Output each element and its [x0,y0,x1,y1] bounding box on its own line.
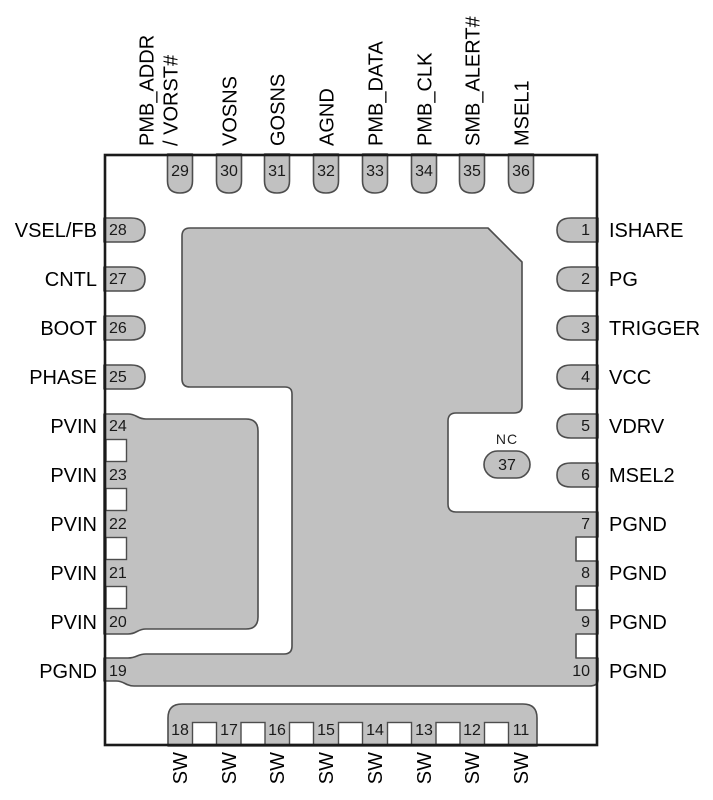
pin-number: 8 [581,565,590,582]
pin-number: 11 [513,722,530,739]
pin-label: PVIN [50,416,97,438]
pin-label: SW [170,752,192,784]
right-pin-tabs [557,218,598,487]
pin-number: 5 [581,418,590,435]
ic-pinout-svg: 29 30 31 32 33 34 35 36 PMB_ADDR / VORST… [0,0,713,800]
pin-separator-notch [241,723,265,745]
pin-label: VOSNS [220,76,242,146]
pin-tab-3 [557,316,598,340]
pin-number: 2 [581,271,590,288]
pin-label: PMB_DATA [366,41,388,146]
pin-number: 23 [109,467,127,484]
pin-number: 27 [109,271,127,288]
pin-label: / VORST# [161,54,183,146]
pin-number: 19 [109,663,127,680]
pin-number: 36 [512,163,530,180]
pin-separator-notch [193,723,217,745]
pin-label: SW [365,752,387,784]
pin-separator-notch [106,489,127,511]
pin-number: 35 [463,163,481,180]
pvin-block-group [104,414,258,634]
pin-label: SW [511,752,533,784]
pin-tab-6 [557,463,598,487]
pin-separator-notch [106,440,127,462]
pin-label: MSEL2 [609,465,675,487]
pin-number: 7 [581,516,590,533]
pin-number: 29 [171,163,189,180]
pin-separator-notch [339,723,363,745]
pin-label: VDRV [609,416,665,438]
pin-number: 25 [109,369,127,386]
pin-label: ISHARE [609,220,683,242]
pin-label: PG [609,269,638,291]
pin-label: PMB_CLK [415,52,437,146]
pin-label: PHASE [29,367,97,389]
pin-number: 10 [572,663,590,680]
pin-label: SW [267,752,289,784]
pin-number: 22 [109,516,127,533]
pinout-diagram: 29 30 31 32 33 34 35 36 PMB_ADDR / VORST… [0,0,713,800]
pin-number: 20 [109,614,127,631]
pin-label: TRIGGER [609,318,700,340]
pin-number: 1 [581,222,590,239]
pin-label: SW [219,752,241,784]
left-pin-labels: VSEL/FB CNTL BOOT PHASE PVIN PVIN PVIN P… [15,220,97,683]
pin-label: PGND [39,661,97,683]
pin-separator-notch [106,587,127,609]
pin-separator-notch [436,723,460,745]
pin-label: PGND [609,612,667,634]
pin-tab-2 [557,267,598,291]
pin-number: 31 [268,163,286,180]
pin-number: 24 [109,418,127,435]
pin-number: 37 [498,457,516,474]
pin-label: MSEL1 [512,80,534,146]
pin-number: 34 [415,163,433,180]
pin-number: 33 [366,163,384,180]
pin-label: PVIN [50,514,97,536]
pin-number: 16 [268,722,286,739]
pin-number: 28 [109,222,127,239]
pin-label: PGND [609,514,667,536]
left-pin-tabs [104,218,145,389]
top-pin-numbers: 29 30 31 32 33 34 35 36 [171,163,530,180]
top-pin-labels: PMB_ADDR / VORST# VOSNS GOSNS AGND PMB_D… [137,15,534,146]
pin-label: VSEL/FB [15,220,97,242]
pin-label: SW [316,752,338,784]
pin-number: 15 [317,722,335,739]
pin-number: 3 [581,320,590,337]
pin-number: 26 [109,320,127,337]
pin-number: 32 [317,163,335,180]
pin-label: PGND [609,661,667,683]
pin-label: BOOT [40,318,97,340]
pin-label: AGND [317,88,339,146]
pin-number: 14 [366,722,384,739]
pin-separator-notch [388,723,412,745]
pin-label: PGND [609,563,667,585]
pin-label: PVIN [50,612,97,634]
right-pin-labels: ISHARE PG TRIGGER VCC VDRV MSEL2 PGND PG… [609,220,700,683]
pin-label: SMB_ALERT# [463,15,485,146]
pin-label: VCC [609,367,651,389]
pin-number: 6 [581,467,590,484]
pin-number: 30 [220,163,238,180]
pin-tab-5 [557,414,598,438]
pin-label: PVIN [50,563,97,585]
pin-label: NC [496,431,518,447]
pin-separator-notch [485,723,509,745]
pin-number: 4 [581,369,590,386]
pin-number: 13 [415,722,433,739]
pin-number: 21 [109,565,127,582]
pin-label: SW [462,752,484,784]
pin-separator-notch [106,538,127,560]
pin-label: PMB_ADDR [137,35,159,146]
pin-label: GOSNS [268,74,290,146]
pin-separator-notch [290,723,314,745]
bottom-pin-labels: SW SW SW SW SW SW SW SW [170,752,533,784]
pin-tab-1 [557,218,598,242]
pin-label: CNTL [45,269,97,291]
pin-number: 12 [463,722,481,739]
pin-tab-4 [557,365,598,389]
pin-number: 17 [220,722,238,739]
pin-label: PVIN [50,465,97,487]
pin-number: 9 [581,614,590,631]
pin-label: SW [414,752,436,784]
pin-number: 18 [171,722,189,739]
